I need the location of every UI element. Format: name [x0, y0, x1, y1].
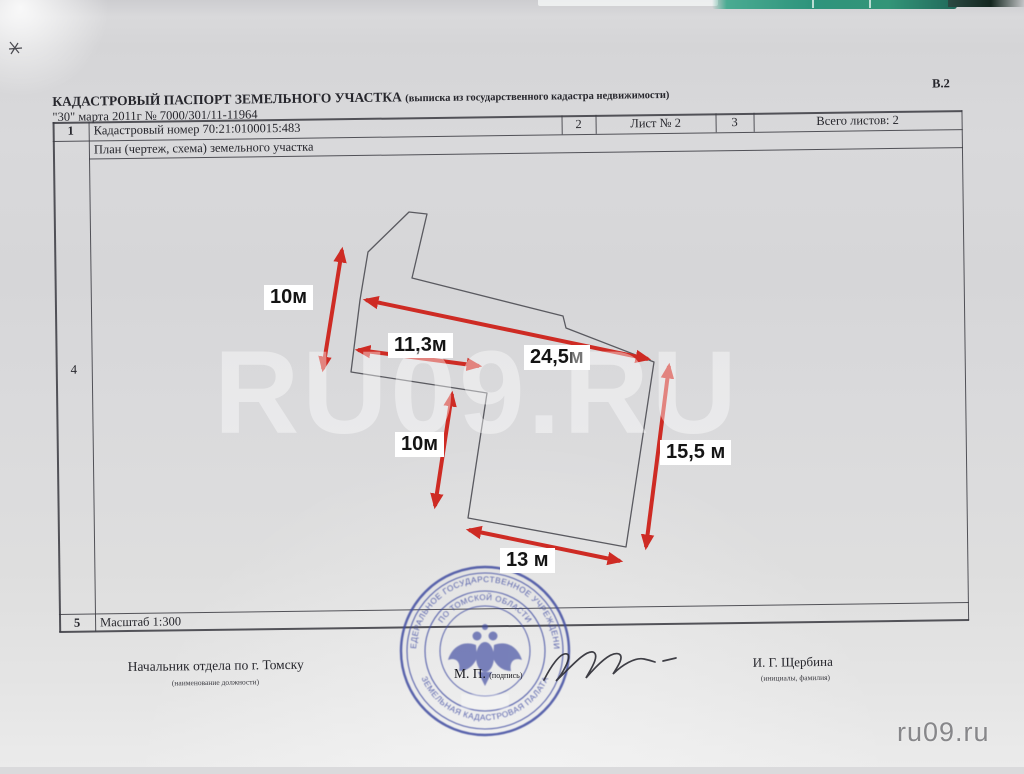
scan-artifact-green-gap: [812, 0, 814, 8]
scan-artifact-corner-mark: [8, 39, 24, 57]
scan-artifact-green-gap-2: [869, 0, 871, 8]
signatory-note: (инициалы, фамилия): [761, 673, 830, 683]
dimension-label-10m-lower: 10м: [395, 432, 444, 457]
scan-artifact-green-object: [712, 0, 957, 9]
table-border-right: [961, 110, 969, 620]
scale-row-number: 5: [59, 615, 95, 630]
stamp-inner-text: ПО ТОМСКОЙ ОБЛАСТИ: [436, 593, 533, 625]
signatory-name: И. Г. Щербина: [753, 654, 833, 671]
dimension-label-24-5m: 24,5м: [524, 345, 590, 370]
svg-text:ПО ТОМСКОЙ ОБЛАСТИ: ПО ТОМСКОЙ ОБЛАСТИ: [436, 593, 533, 625]
sheet-number: Лист № 2: [596, 115, 716, 132]
position-title: Начальник отдела по г. Томску: [128, 657, 304, 675]
plan-title: План (чертеж, схема) земельного участка: [94, 139, 314, 157]
dimension-label-11-3m: 11,3м: [388, 333, 453, 358]
document-code: В.2: [932, 76, 950, 91]
dimension-label-13m: 13 м: [500, 548, 555, 573]
stamp-light-patch: [461, 694, 509, 709]
dimension-label-15-5m: 15,5 м: [660, 440, 731, 465]
stamp-mp-label: М. П. (подпись): [454, 666, 522, 682]
table-col3-number: 3: [716, 115, 754, 130]
scan-artifact-dark-tail: [948, 0, 1024, 7]
document-title-line: КАДАСТРОВЫЙ ПАСПОРТ ЗЕМЕЛЬНОГО УЧАСТКА (…: [52, 86, 669, 110]
cadastral-number-line: Кадастровый номер 70:21:0100015:483: [94, 121, 301, 139]
stamp-mp-note: (подпись): [489, 671, 522, 680]
plan-row-number: 4: [56, 362, 92, 378]
table-row1-number: 1: [53, 124, 89, 139]
watermark-small: ru09.ru: [897, 717, 990, 748]
stamp-mp-text: М. П.: [454, 666, 486, 681]
official-stamp: ФЕДЕРАЛЬНОЕ ГОСУДАРСТВЕННОЕ УЧРЕЖДЕНИЕ З…: [395, 561, 575, 741]
document-title-note: (выписка из государственного кадастра не…: [405, 90, 669, 104]
scan-artifact-light-strip: [538, 0, 718, 6]
position-note: (наименование должности): [172, 677, 259, 687]
table-col2-number: 2: [562, 117, 596, 132]
scale-value: Масштаб 1:300: [100, 614, 181, 630]
total-sheets: Всего листов: 2: [753, 112, 961, 130]
dimension-label-10m-upper: 10м: [264, 285, 313, 310]
document-title: КАДАСТРОВЫЙ ПАСПОРТ ЗЕМЕЛЬНОГО УЧАСТКА: [52, 89, 402, 109]
